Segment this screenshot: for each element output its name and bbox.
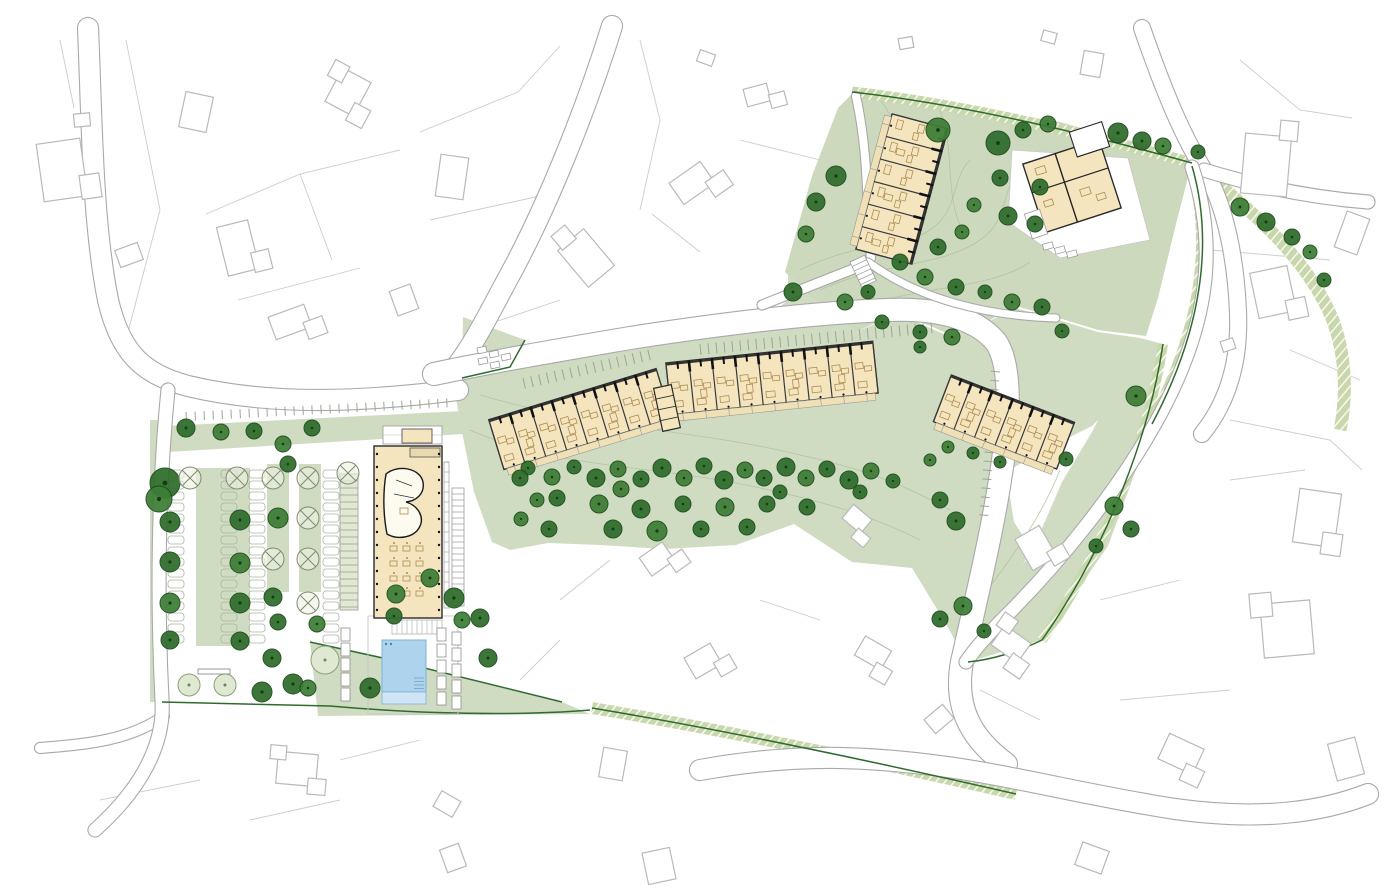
sun-lounger bbox=[452, 648, 461, 661]
sun-lounger bbox=[341, 688, 350, 701]
tree bbox=[1303, 245, 1317, 259]
tree bbox=[926, 118, 950, 142]
tree bbox=[304, 420, 320, 436]
tree bbox=[246, 423, 262, 439]
tree bbox=[300, 680, 316, 696]
tree bbox=[633, 471, 649, 487]
tree bbox=[1105, 497, 1123, 515]
tree bbox=[230, 510, 250, 530]
sun-lounger bbox=[437, 676, 446, 689]
tree bbox=[230, 553, 250, 573]
sun-lounger bbox=[341, 658, 350, 671]
tree bbox=[955, 225, 969, 239]
tree bbox=[479, 649, 497, 667]
tree bbox=[1089, 539, 1103, 553]
tree bbox=[632, 500, 650, 518]
tree bbox=[386, 608, 402, 624]
tree bbox=[798, 226, 814, 242]
planter-circle bbox=[311, 646, 339, 674]
tree bbox=[587, 469, 605, 487]
tree bbox=[737, 462, 753, 478]
tree bbox=[756, 470, 772, 486]
sun-lounger bbox=[341, 643, 350, 656]
tree bbox=[715, 471, 733, 489]
tree bbox=[544, 469, 560, 485]
context-house bbox=[599, 747, 628, 781]
tree bbox=[613, 481, 629, 497]
sun-lounger bbox=[437, 692, 446, 705]
sun-lounger bbox=[341, 628, 350, 641]
planned-tree-symbol bbox=[262, 548, 284, 570]
small-pavement-unit bbox=[477, 346, 487, 354]
tree bbox=[1126, 386, 1146, 406]
tree bbox=[932, 611, 948, 627]
tree bbox=[1040, 116, 1056, 132]
tree bbox=[967, 447, 979, 459]
tree bbox=[1015, 122, 1031, 138]
tree bbox=[1055, 324, 1069, 338]
sun-lounger bbox=[452, 680, 461, 693]
tree bbox=[837, 294, 853, 310]
tree bbox=[309, 616, 325, 632]
tree bbox=[853, 485, 867, 499]
tree bbox=[696, 458, 712, 474]
tree bbox=[1004, 294, 1020, 310]
tree bbox=[978, 285, 992, 299]
tree bbox=[653, 459, 671, 477]
tree bbox=[514, 512, 528, 526]
planter-circle bbox=[214, 674, 236, 696]
tree bbox=[947, 512, 965, 530]
tree bbox=[999, 207, 1017, 225]
tree bbox=[917, 269, 933, 285]
tree bbox=[512, 470, 528, 486]
sun-lounger bbox=[437, 660, 446, 673]
tree bbox=[992, 170, 1008, 186]
tree bbox=[146, 486, 172, 512]
tree bbox=[913, 325, 927, 339]
tree bbox=[421, 569, 439, 587]
tree bbox=[1032, 179, 1048, 195]
tree bbox=[1108, 123, 1128, 143]
tree bbox=[826, 166, 846, 186]
tree bbox=[967, 198, 981, 212]
tree bbox=[161, 631, 179, 649]
tree bbox=[944, 329, 960, 345]
tree bbox=[863, 463, 879, 479]
tree bbox=[892, 254, 908, 270]
swimming-pool bbox=[382, 640, 426, 704]
tree bbox=[280, 456, 296, 472]
sun-lounger bbox=[452, 664, 461, 677]
tree bbox=[160, 552, 180, 572]
tree bbox=[798, 470, 814, 486]
pergola-strip bbox=[340, 474, 358, 610]
sun-lounger bbox=[452, 696, 461, 709]
tree bbox=[647, 521, 667, 541]
tree bbox=[716, 498, 734, 516]
tree bbox=[264, 588, 282, 606]
tree bbox=[948, 279, 964, 295]
planned-tree-symbol bbox=[262, 467, 284, 489]
site-plan-canvas bbox=[0, 0, 1400, 890]
tree bbox=[1034, 299, 1050, 315]
tree bbox=[541, 521, 557, 537]
tree bbox=[360, 678, 380, 698]
tree bbox=[914, 341, 926, 353]
planned-tree-symbol bbox=[297, 592, 319, 614]
tree bbox=[994, 456, 1006, 468]
architectural-site-plan bbox=[0, 0, 1400, 890]
tree bbox=[283, 674, 303, 694]
tree bbox=[270, 614, 286, 630]
tree bbox=[986, 131, 1010, 155]
tree bbox=[693, 521, 709, 537]
tree bbox=[1155, 138, 1171, 154]
planned-tree-symbol bbox=[297, 548, 319, 570]
tree bbox=[875, 315, 889, 329]
tree bbox=[807, 193, 825, 211]
sun-lounger bbox=[437, 628, 446, 641]
tree bbox=[886, 474, 900, 488]
tree bbox=[1257, 213, 1275, 231]
tree bbox=[444, 588, 464, 608]
tree bbox=[1123, 521, 1139, 537]
tree bbox=[1317, 273, 1331, 287]
sun-lounger bbox=[452, 632, 461, 645]
tree bbox=[932, 492, 948, 508]
tree bbox=[160, 512, 180, 532]
tree bbox=[275, 436, 291, 452]
tree bbox=[268, 508, 288, 528]
tree bbox=[160, 593, 180, 613]
context-house bbox=[1080, 50, 1104, 77]
tree bbox=[676, 470, 692, 486]
planned-tree-symbol bbox=[226, 467, 248, 489]
planned-tree-symbol bbox=[297, 467, 319, 489]
tree bbox=[784, 283, 802, 301]
tree bbox=[549, 490, 565, 506]
planned-tree-symbol bbox=[337, 462, 359, 484]
tree bbox=[942, 441, 954, 453]
context-house bbox=[642, 847, 676, 884]
tree bbox=[231, 632, 249, 650]
planter-circle bbox=[178, 674, 200, 696]
tree bbox=[675, 496, 691, 512]
tree bbox=[213, 424, 229, 440]
tree bbox=[1027, 216, 1043, 232]
tree bbox=[1133, 132, 1151, 150]
sun-lounger bbox=[437, 644, 446, 657]
tree bbox=[530, 493, 544, 507]
tree bbox=[604, 520, 622, 538]
sun-lounger bbox=[341, 673, 350, 686]
tree bbox=[799, 499, 815, 515]
small-pavement-unit bbox=[489, 350, 499, 358]
tree bbox=[819, 461, 835, 477]
tree bbox=[1059, 452, 1073, 466]
tree bbox=[263, 649, 281, 667]
small-pavement-unit bbox=[501, 353, 511, 361]
context-house bbox=[435, 154, 469, 199]
tree bbox=[773, 485, 787, 499]
tree bbox=[590, 495, 608, 513]
tree bbox=[610, 461, 626, 477]
tree bbox=[471, 609, 489, 627]
tree bbox=[954, 597, 972, 615]
tree bbox=[177, 419, 195, 437]
tree bbox=[454, 612, 470, 628]
tree bbox=[977, 624, 991, 638]
tree bbox=[1284, 229, 1300, 245]
hotel-building bbox=[374, 426, 449, 618]
small-pavement-unit bbox=[490, 361, 500, 369]
tree bbox=[777, 458, 795, 476]
planned-tree-symbol bbox=[297, 507, 319, 529]
tree bbox=[387, 585, 405, 603]
tree bbox=[924, 454, 936, 466]
tree bbox=[861, 285, 875, 299]
context-house bbox=[898, 36, 914, 49]
tree bbox=[739, 519, 755, 535]
planned-tree-symbol bbox=[179, 467, 201, 489]
tree bbox=[1191, 145, 1205, 159]
context-house bbox=[73, 113, 90, 127]
tree bbox=[230, 593, 250, 613]
tree bbox=[930, 239, 946, 255]
small-pavement-unit bbox=[478, 357, 488, 365]
tree bbox=[1231, 198, 1249, 216]
tree bbox=[567, 460, 581, 474]
tree bbox=[759, 496, 775, 512]
tree bbox=[252, 682, 272, 702]
